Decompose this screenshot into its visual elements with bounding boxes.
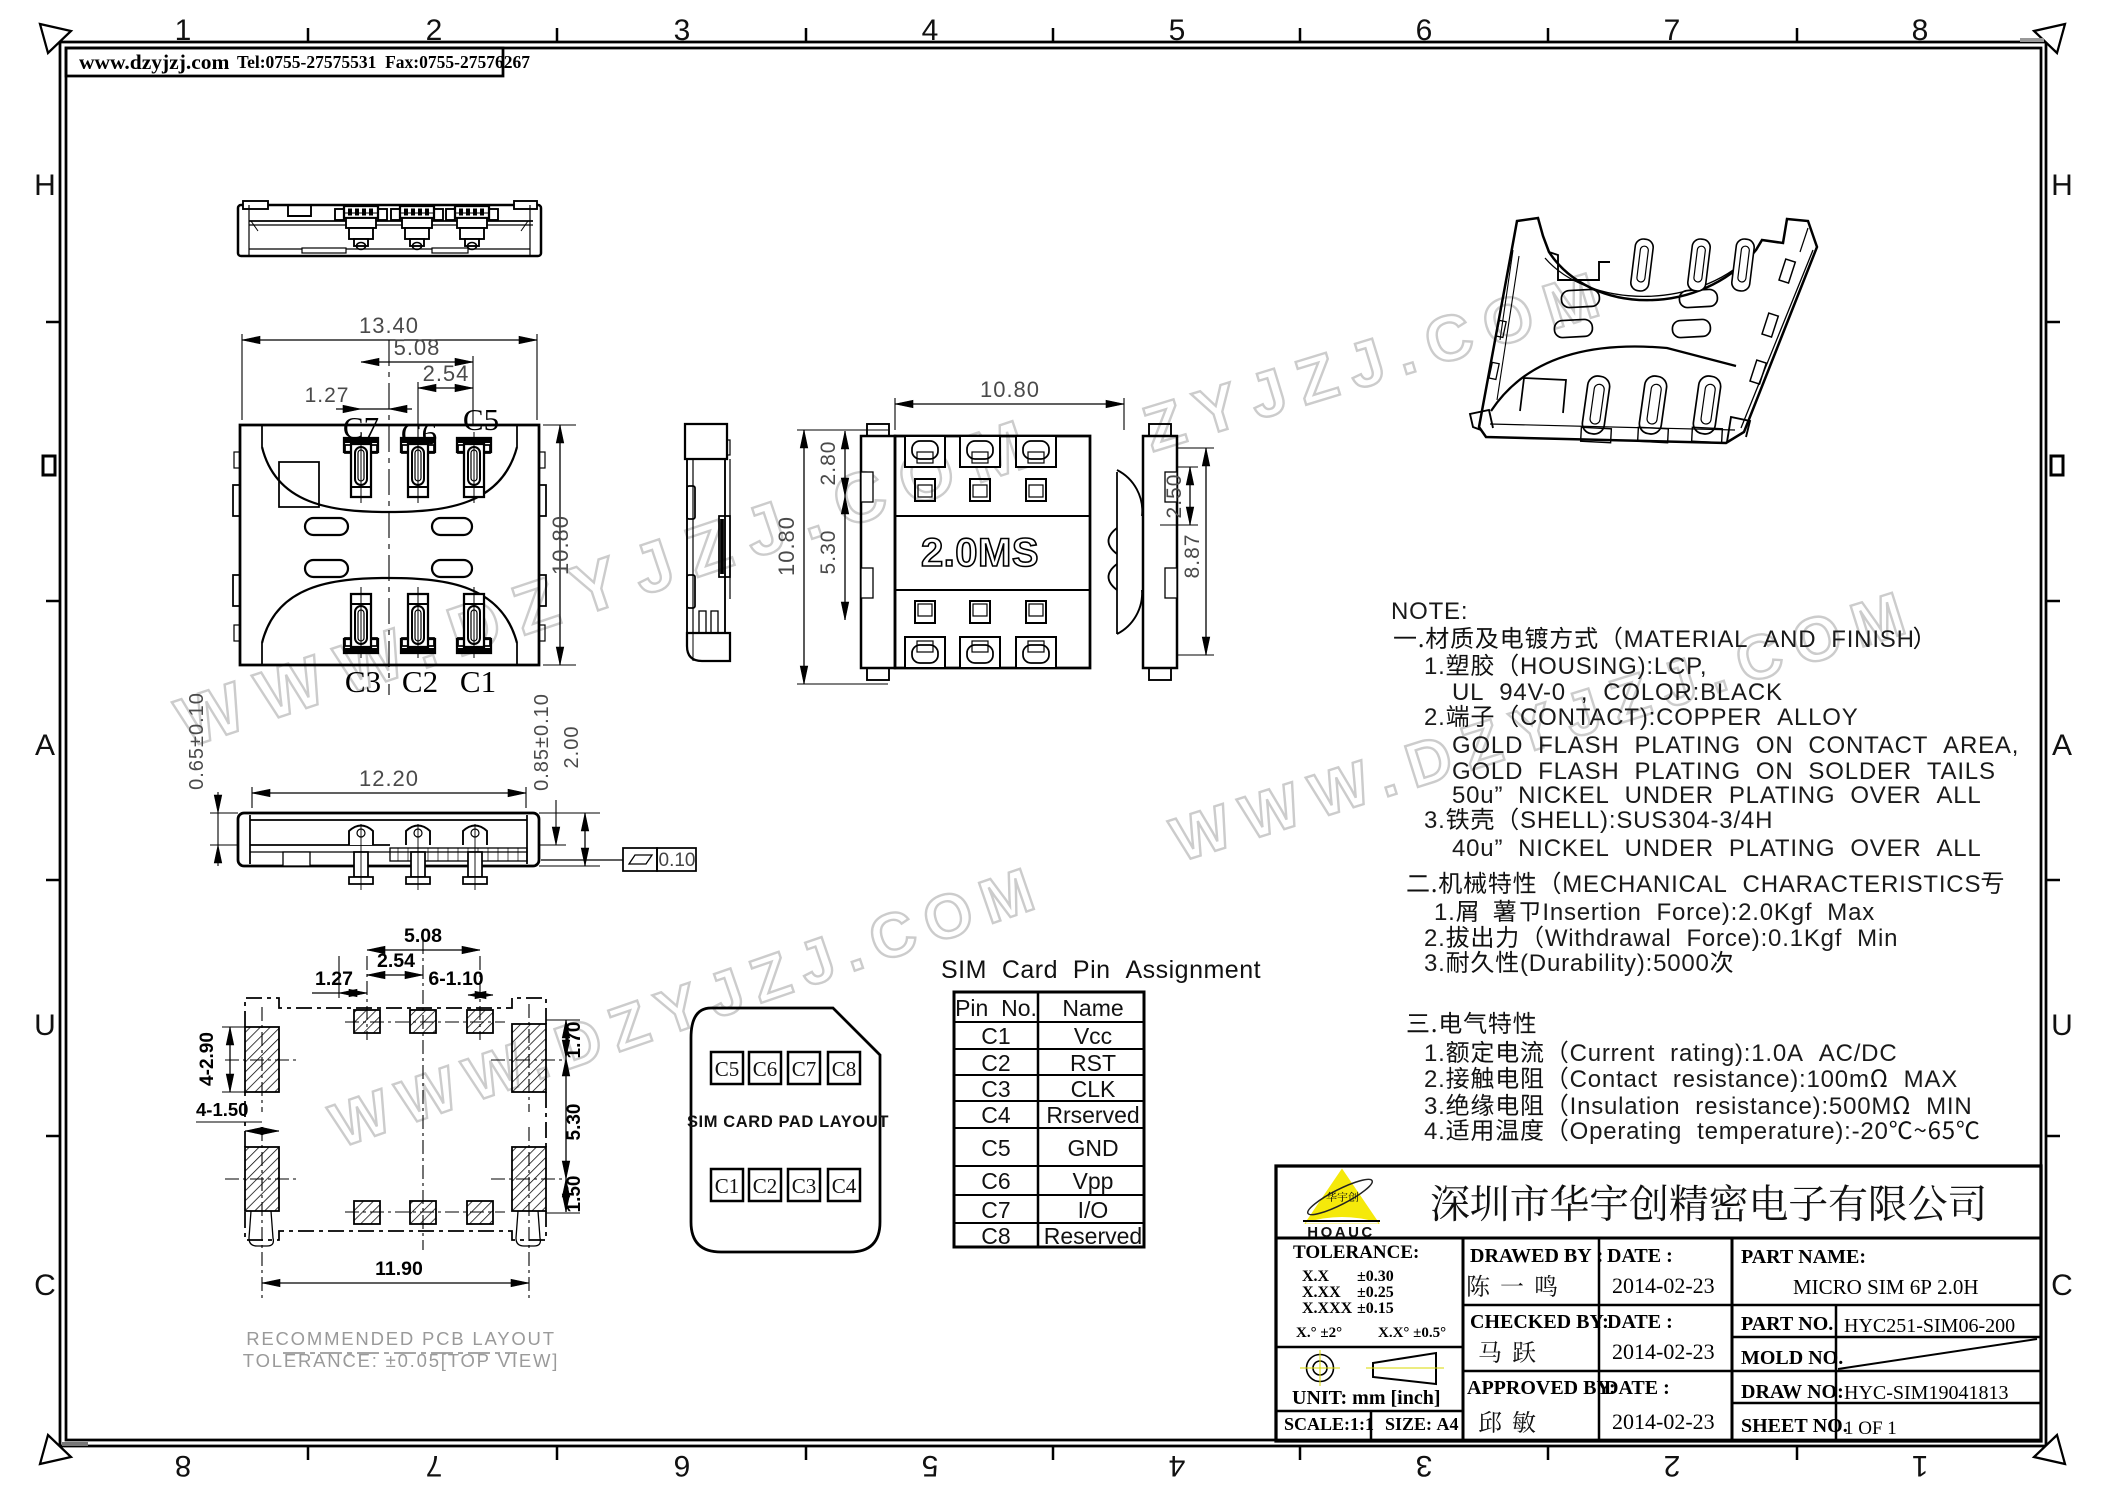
svg-text:±0.30: ±0.30 — [1357, 1268, 1394, 1285]
svg-text:5: 5 — [1169, 14, 1186, 47]
svg-text:(Durability):5000: (Durability):5000 — [1520, 950, 1710, 977]
svg-text:2.: 2. — [1424, 925, 1446, 952]
svg-text:H: H — [2051, 169, 2073, 202]
svg-text:APPROVED BY:: APPROVED BY: — [1467, 1377, 1616, 1399]
svg-text:C3: C3 — [345, 664, 381, 699]
svg-text:Pin No.: Pin No. — [955, 995, 1037, 1021]
svg-text:1.27: 1.27 — [305, 384, 350, 407]
svg-text:1.27: 1.27 — [315, 968, 353, 990]
svg-text:C8: C8 — [981, 1223, 1010, 1249]
svg-text:5.30: 5.30 — [564, 1104, 585, 1141]
svg-text:3: 3 — [1416, 1449, 1433, 1482]
svg-text:C6: C6 — [753, 1057, 778, 1081]
svg-text:H: H — [34, 169, 56, 202]
svg-text:PART NO.: PART NO. — [1741, 1313, 1833, 1335]
svg-text:0.85±0.10: 0.85±0.10 — [531, 693, 553, 791]
svg-text:C6: C6 — [981, 1168, 1010, 1194]
svg-text:Name: Name — [1062, 995, 1123, 1021]
svg-text:HOAUC: HOAUC — [1307, 1224, 1375, 1241]
svg-text:Reserved: Reserved — [1044, 1223, 1142, 1249]
svg-text:C3: C3 — [792, 1174, 817, 1198]
svg-text:10.80: 10.80 — [548, 515, 573, 575]
svg-text:2.: 2. — [1424, 1066, 1446, 1093]
svg-text:2: 2 — [1664, 1449, 1681, 1482]
svg-text:X.XX: X.XX — [1302, 1284, 1341, 1301]
svg-text:C4: C4 — [981, 1102, 1011, 1128]
svg-text:TOLERANCE: ±0.05[TOP VIEW]: TOLERANCE: ±0.05[TOP VIEW] — [243, 1350, 559, 1371]
svg-text:3.: 3. — [1424, 1093, 1446, 1120]
svg-text:A: A — [2052, 729, 2072, 762]
svg-text:DATE :: DATE : — [1607, 1245, 1673, 1267]
svg-text:2.54: 2.54 — [377, 950, 415, 972]
svg-text:10.80: 10.80 — [980, 377, 1040, 402]
svg-text:TOLERANCE:: TOLERANCE: — [1293, 1242, 1419, 1263]
svg-text:1: 1 — [175, 14, 192, 47]
svg-text:2014-02-23: 2014-02-23 — [1612, 1273, 1715, 1298]
svg-text:SHEET NO.: SHEET NO. — [1741, 1415, 1848, 1437]
svg-text:HYC-SIM19041813: HYC-SIM19041813 — [1844, 1382, 2008, 1404]
svg-text:10.80: 10.80 — [774, 516, 799, 576]
svg-text:DATE :: DATE : — [1604, 1377, 1670, 1399]
svg-text:Withdrawal Force):0.1Kgf Min: Withdrawal Force):0.1Kgf Min — [1545, 925, 1898, 952]
svg-text:6-1.10: 6-1.10 — [428, 968, 483, 990]
svg-text:1.: 1. — [1424, 653, 1446, 680]
svg-text:1.70: 1.70 — [564, 1022, 585, 1059]
svg-text:4-2.90: 4-2.90 — [197, 1032, 218, 1086]
svg-text:SIM CARD PAD LAYOUT: SIM CARD PAD LAYOUT — [687, 1113, 889, 1131]
svg-text:SCALE:1:1: SCALE:1:1 — [1284, 1414, 1374, 1434]
svg-text:1.50: 1.50 — [564, 1176, 585, 1213]
svg-text:2.0MS: 2.0MS — [921, 531, 1039, 575]
svg-text:C8: C8 — [832, 1057, 857, 1081]
svg-text:MOLD NO.: MOLD NO. — [1741, 1347, 1843, 1369]
svg-text:0.65±0.10: 0.65±0.10 — [186, 692, 208, 790]
svg-text:PART NAME:: PART NAME: — [1741, 1246, 1866, 1268]
svg-text:Rrserved: Rrserved — [1046, 1102, 1139, 1128]
svg-text:0.10: 0.10 — [659, 850, 696, 871]
svg-text:CHECKED BY:: CHECKED BY: — [1470, 1311, 1609, 1333]
svg-text:C6: C6 — [401, 416, 437, 451]
svg-text:RECOMMENDED PCB LAYOUT: RECOMMENDED PCB LAYOUT — [246, 1328, 556, 1349]
svg-text:2.00: 2.00 — [561, 726, 583, 769]
svg-text:4: 4 — [922, 14, 939, 47]
svg-text:X.X° ±0.5°: X.X° ±0.5° — [1378, 1325, 1446, 1341]
svg-text:HOUSING):LCP,: HOUSING):LCP, — [1520, 653, 1707, 680]
svg-text:C1: C1 — [715, 1174, 740, 1198]
svg-text:SIM Card Pin Assignment: SIM Card Pin Assignment — [941, 956, 1261, 984]
svg-text:C: C — [2051, 1269, 2073, 1302]
svg-text:MICRO SIM 6P 2.0H: MICRO SIM 6P 2.0H — [1793, 1275, 1979, 1299]
svg-text:2.80: 2.80 — [817, 441, 840, 486]
svg-text:5.08: 5.08 — [404, 925, 442, 947]
svg-text:40u” NICKEL UNDER PLATING: 40u” NICKEL UNDER PLATING OVER ALL — [1452, 835, 1982, 862]
svg-text:6: 6 — [674, 1449, 691, 1482]
svg-text:2014-02-23: 2014-02-23 — [1612, 1339, 1715, 1364]
svg-text:7: 7 — [426, 1449, 443, 1482]
svg-text:C2: C2 — [402, 664, 438, 699]
svg-text:C7: C7 — [981, 1197, 1010, 1223]
svg-text:5.08: 5.08 — [394, 335, 441, 360]
svg-text:GOLD FLASH PLATING ON SOLD: GOLD FLASH PLATING ON SOLDER TAILS — [1452, 758, 1996, 785]
svg-text:GOLD FLASH PLATING ON CONT: GOLD FLASH PLATING ON CONTACT AREA, — [1452, 732, 2019, 759]
svg-text:C: C — [34, 1269, 56, 1302]
svg-text:DATE :: DATE : — [1607, 1311, 1673, 1333]
svg-text:NOTE:: NOTE: — [1391, 598, 1468, 625]
svg-text:4: 4 — [1169, 1449, 1186, 1482]
svg-text:MAX: MAX — [1889, 1066, 1958, 1093]
svg-text:11.90: 11.90 — [375, 1258, 423, 1280]
svg-text:HYC251-SIM06-200: HYC251-SIM06-200 — [1844, 1315, 2015, 1337]
svg-text:2.54: 2.54 — [423, 361, 470, 386]
svg-text:4.: 4. — [1424, 1118, 1446, 1145]
svg-text:Vpp: Vpp — [1073, 1168, 1114, 1194]
svg-text:C5: C5 — [715, 1057, 740, 1081]
svg-text:C5: C5 — [463, 402, 499, 437]
svg-text:3: 3 — [674, 14, 691, 47]
svg-text:X.X: X.X — [1302, 1268, 1330, 1285]
svg-text:C3: C3 — [981, 1076, 1010, 1102]
svg-text:U: U — [2051, 1009, 2073, 1042]
svg-text:X.XXX: X.XXX — [1302, 1300, 1353, 1317]
svg-text:Vcc: Vcc — [1074, 1023, 1112, 1049]
svg-text:5: 5 — [922, 1449, 939, 1482]
svg-text:3.: 3. — [1424, 950, 1446, 977]
svg-text:SHELL):SUS304-3/4H: SHELL):SUS304-3/4H — [1520, 807, 1773, 834]
svg-text:Insertion Force):2.0Kgf Max: Insertion Force):2.0Kgf Max — [1542, 899, 1875, 926]
svg-text:Operating temperature):-20: Operating temperature):-20 — [1570, 1118, 1889, 1145]
svg-text:1.: 1. — [1434, 899, 1456, 926]
svg-text:2014-02-23: 2014-02-23 — [1612, 1409, 1715, 1434]
svg-text:I/O: I/O — [1078, 1197, 1109, 1223]
svg-text:C5: C5 — [981, 1135, 1010, 1161]
svg-text:C2: C2 — [753, 1174, 778, 1198]
svg-text:C4: C4 — [832, 1174, 857, 1198]
svg-text:5.30: 5.30 — [817, 530, 840, 575]
svg-text:Current rating):1.0A AC/DC: Current rating):1.0A AC/DC — [1570, 1040, 1898, 1067]
svg-text:Contact resistance):100m: Contact resistance):100m — [1570, 1066, 1870, 1093]
svg-text:8: 8 — [1912, 14, 1929, 47]
svg-text:1 OF 1: 1 OF 1 — [1844, 1418, 1897, 1439]
svg-text:±0.15: ±0.15 — [1357, 1300, 1394, 1317]
svg-text:MIN: MIN — [1911, 1093, 1972, 1120]
svg-text:50u” NICKEL UNDER PLATING: 50u” NICKEL UNDER PLATING OVER ALL — [1452, 782, 1982, 809]
svg-text:4-1.50: 4-1.50 — [196, 1099, 248, 1120]
svg-text:Insulation resistance):500M: Insulation resistance):500M — [1570, 1093, 1893, 1120]
svg-text:6: 6 — [1416, 14, 1433, 47]
svg-text:DRAWED BY :: DRAWED BY : — [1470, 1245, 1603, 1267]
svg-text:MATERIAL AND FINISH: MATERIAL AND FINISH — [1624, 626, 1915, 653]
svg-text:2.50: 2.50 — [1163, 474, 1186, 519]
svg-text:8.87: 8.87 — [1181, 534, 1204, 579]
svg-text:C7: C7 — [343, 410, 379, 445]
svg-text:www.dzyjzj.com: www.dzyjzj.com — [79, 50, 230, 74]
svg-text:DRAW NO:: DRAW NO: — [1741, 1381, 1844, 1403]
svg-text:12.20: 12.20 — [359, 766, 419, 791]
svg-text:2: 2 — [426, 14, 443, 47]
svg-text:CONTACT):COPPER ALLOY: CONTACT):COPPER ALLOY — [1520, 704, 1859, 731]
svg-text:C1: C1 — [460, 664, 496, 699]
svg-text:2.: 2. — [1424, 704, 1446, 731]
svg-text:7: 7 — [1664, 14, 1681, 47]
svg-text:A: A — [35, 729, 55, 762]
svg-text:3.: 3. — [1424, 807, 1446, 834]
svg-text:CLK: CLK — [1071, 1076, 1116, 1102]
svg-text:1: 1 — [1912, 1449, 1929, 1482]
svg-text:8: 8 — [175, 1449, 192, 1482]
svg-text:1.: 1. — [1424, 1040, 1446, 1067]
svg-text:SIZE: A4: SIZE: A4 — [1385, 1414, 1459, 1434]
svg-text:C7: C7 — [792, 1057, 817, 1081]
svg-text:RST: RST — [1070, 1050, 1116, 1076]
svg-text:U: U — [34, 1009, 56, 1042]
svg-text:C1: C1 — [981, 1023, 1010, 1049]
svg-text:UL 94V-0 , COLOR:BLACK: UL 94V-0 , COLOR:BLACK — [1452, 679, 1783, 706]
svg-text:Tel:0755-27575531 Fax:0755-27: Tel:0755-27575531 Fax:0755-27576267 — [237, 52, 530, 72]
svg-text:C2: C2 — [981, 1050, 1010, 1076]
svg-text:X.° ±2°: X.° ±2° — [1296, 1325, 1342, 1341]
svg-text:UNIT: mm [inch]: UNIT: mm [inch] — [1292, 1387, 1441, 1409]
svg-text:GND: GND — [1067, 1135, 1118, 1161]
svg-text:±0.25: ±0.25 — [1357, 1284, 1394, 1301]
svg-text:MECHANICAL CHARACTERISTICS: MECHANICAL CHARACTERISTICS — [1562, 871, 1981, 898]
